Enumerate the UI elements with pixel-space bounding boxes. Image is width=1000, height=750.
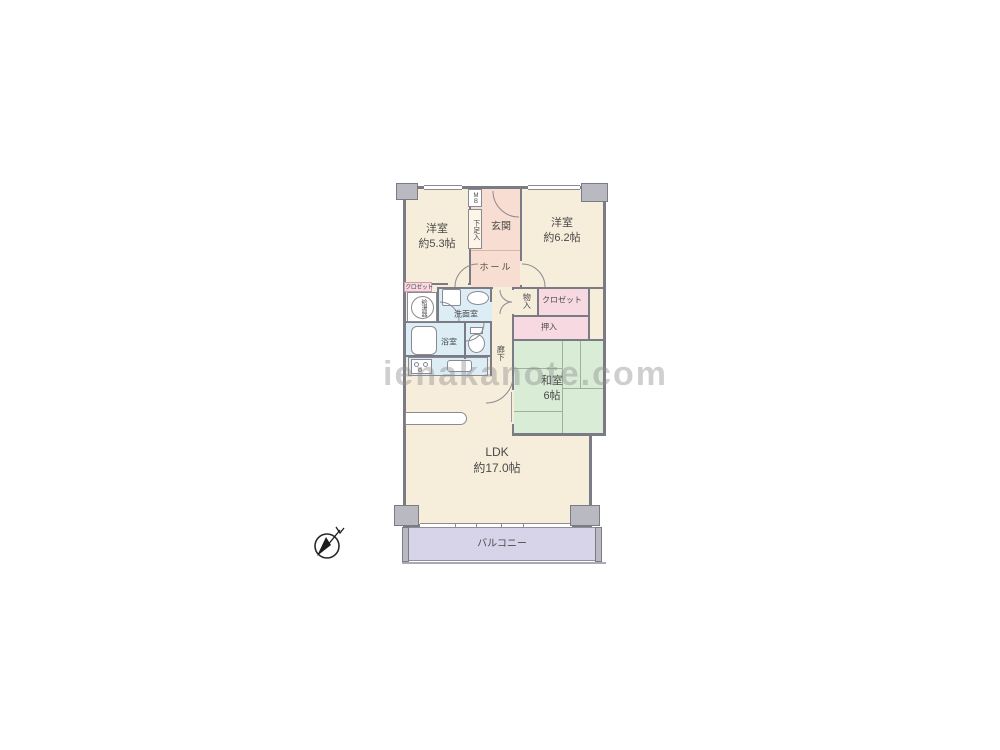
floor-plan-canvas: MB 下足入 クロゼット 給湯器 洋室 約5.3帖 玄関 洋室	[0, 0, 1000, 750]
ldk-name: LDK	[473, 444, 520, 460]
closet-label: クロゼット	[542, 296, 582, 307]
washroom-label: 洗面室	[454, 310, 478, 321]
ldk-label: LDK 約17.0帖	[473, 444, 520, 476]
oshiire-label: 押入	[541, 323, 557, 334]
hall-label: ホール	[479, 261, 512, 273]
bedroom2-size: 約6.2帖	[543, 231, 580, 246]
monoire-label: 物入	[521, 293, 532, 309]
balcony-label: バルコニー	[477, 537, 527, 551]
bathroom-label: 浴室	[441, 338, 457, 349]
watermark: ienakanote.com	[383, 355, 668, 394]
bedroom1-name: 洋室	[418, 222, 455, 237]
bedroom1-size: 約5.3帖	[418, 237, 455, 252]
bedroom1-label: 洋室 約5.3帖	[418, 222, 455, 252]
compass-icon	[310, 524, 348, 564]
entrance-label: 玄関	[491, 220, 511, 234]
bedroom2-label: 洋室 約6.2帖	[543, 216, 580, 246]
bedroom2-name: 洋室	[543, 216, 580, 231]
ldk-size: 約17.0帖	[473, 460, 520, 476]
